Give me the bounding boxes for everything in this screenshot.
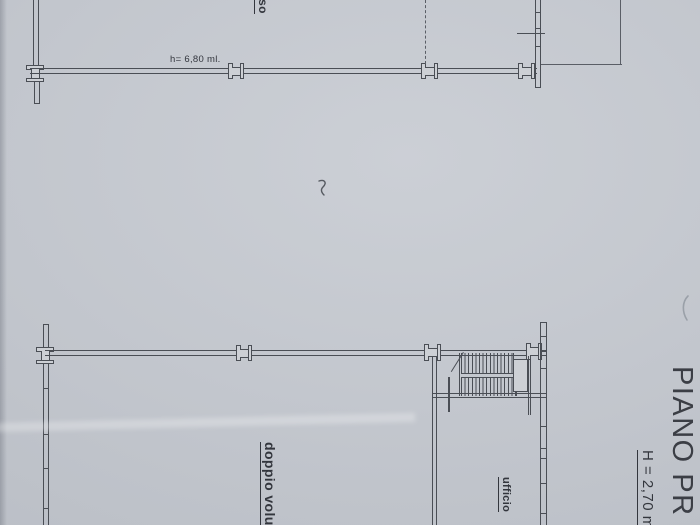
stair-landing (513, 359, 528, 392)
lower-right-wall (540, 322, 547, 525)
canopy-bottom-edge (541, 64, 622, 65)
office-label: ufficio (500, 477, 512, 512)
plan-height-note: H = 2,70 m (639, 450, 656, 525)
upper-left-wall-stub (34, 81, 40, 104)
lower-column-1-icon (236, 345, 252, 361)
door-tick (448, 377, 450, 412)
double-volume-label: doppio volu (262, 442, 278, 525)
stair-lower-flight (461, 378, 517, 396)
canopy-right-edge (620, 0, 621, 65)
plan-title: PIANO PR (665, 366, 698, 517)
upper-column-1-icon (228, 63, 244, 79)
upper-height-note: h= 6,80 ml. (170, 54, 221, 65)
double-volume-label-text: doppio volu (260, 442, 278, 525)
pen-arc-mark (674, 294, 694, 322)
plan-height-note-text: H = 2,70 m (637, 450, 656, 525)
stair-upper-flight (461, 353, 514, 374)
stair-right-wall (528, 356, 531, 415)
upper-column-3-icon (518, 63, 535, 79)
upper-main-wall (30, 68, 537, 74)
upper-dashed-line (425, 0, 426, 64)
upper-room-label-text: sso (254, 0, 270, 14)
upper-room-label: sso (256, 0, 270, 14)
upper-right-wall (535, 0, 541, 88)
pen-squiggle-mark (316, 178, 330, 198)
upper-wall-cross-tick (517, 33, 545, 34)
office-label-text: ufficio (498, 477, 512, 512)
upper-left-wall (33, 0, 39, 70)
scanned-floorplan-page: sso h= 6,80 ml. (0, 0, 700, 525)
paper-crease (0, 413, 415, 433)
interior-vertical-wall (432, 356, 437, 525)
upper-column-2-icon (421, 63, 438, 79)
